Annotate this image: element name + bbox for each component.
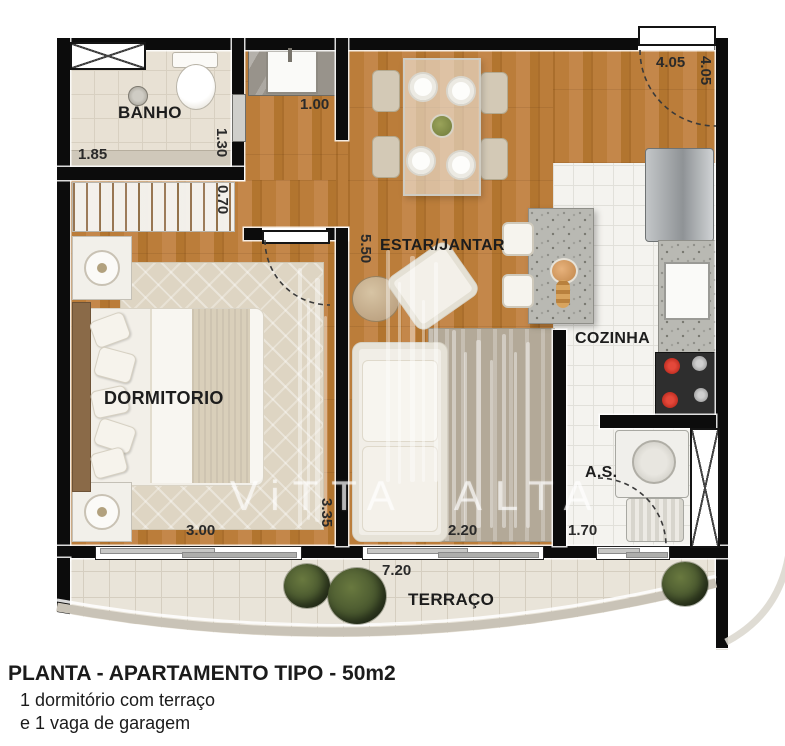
banho-height-dim: 1.30	[213, 128, 230, 157]
bar-stool	[502, 274, 534, 308]
dining-chair	[372, 70, 400, 112]
dinner-plate	[408, 72, 438, 102]
wall-banho-bottom	[57, 167, 244, 180]
plan-subtitle-2: e 1 vaga de garagem	[20, 713, 396, 734]
vitta-alta-watermark: ViTTA ALTA	[230, 472, 605, 520]
estar-height-dim: 5.50	[357, 234, 374, 263]
hall-sink	[266, 50, 318, 94]
dinner-plate	[446, 76, 476, 106]
terraco-width-dim: 7.20	[382, 562, 411, 579]
as-terrace-door	[596, 546, 670, 560]
entry-door-leaf	[638, 26, 716, 46]
plan-title: PLANTA - APARTAMENTO TIPO - 50m2	[8, 662, 396, 686]
estar-terrace-sliding-door	[362, 546, 544, 560]
cozinha-label: COZINHA	[575, 330, 650, 348]
stove-pot	[694, 388, 708, 402]
dining-chair	[372, 136, 400, 178]
bed-headboard	[72, 302, 91, 492]
service-shaft	[690, 428, 720, 548]
dinner-plate	[406, 146, 436, 176]
wall-left	[57, 38, 70, 560]
banho-label: BANHO	[118, 103, 182, 123]
laundry-tank	[626, 498, 684, 542]
closet-depth-dim: 0.70	[214, 185, 231, 214]
wall-hall-estar	[336, 38, 348, 140]
banho-door-leaf	[232, 94, 246, 142]
dinner-plate	[446, 150, 476, 180]
wall-terrace-left	[57, 558, 70, 618]
entry-floor	[553, 50, 716, 163]
bar-bread	[556, 280, 570, 308]
light-streak	[434, 262, 438, 482]
light-streak	[386, 250, 390, 482]
stove-burner-red	[664, 358, 680, 374]
light-streak	[422, 300, 425, 482]
terrace-bush	[662, 562, 708, 606]
dining-chair	[480, 138, 508, 180]
terraco-label: TERRAÇO	[408, 590, 494, 610]
plan-subtitle-1: 1 dormitório com terraço	[20, 690, 396, 711]
entry-height-dim: 4.05	[697, 56, 714, 85]
bar-stool	[502, 222, 534, 256]
hall-sink-faucet	[288, 48, 292, 62]
hall-width-dim: 1.00	[300, 96, 329, 113]
dorm-terrace-sliding-door	[95, 546, 302, 560]
refrigerator	[645, 148, 714, 242]
toilet-bowl	[176, 64, 216, 110]
stove-burner-red	[662, 392, 678, 408]
wardrobe	[72, 182, 235, 232]
nightstand-lamp	[84, 494, 120, 530]
dorm-door-leaf	[262, 230, 330, 244]
terrace-bush	[328, 568, 386, 624]
title-block: PLANTA - APARTAMENTO TIPO - 50m2 1 dormi…	[8, 662, 396, 734]
kitchen-sink	[664, 262, 710, 320]
banho-width-dim: 1.85	[78, 146, 107, 163]
nightstand-lamp	[84, 250, 120, 286]
floor-plan-page: BANHO 1.85 1.30 0.70 1.00 DORMITORIO 3.0…	[0, 0, 785, 746]
dining-chair	[480, 72, 508, 114]
decorative-swoosh	[726, 545, 785, 642]
light-streak	[398, 282, 401, 484]
washing-machine-drum	[632, 440, 676, 484]
dormitorio-label: DORMITORIO	[104, 388, 224, 409]
banho-window	[70, 42, 146, 70]
stove-pot	[692, 356, 707, 371]
wall-as-top	[600, 415, 716, 428]
dormitorio-width-dim: 3.00	[186, 522, 215, 539]
as-width-dim: 1.70	[568, 522, 597, 539]
light-streak	[410, 256, 415, 482]
hall-passage-floor	[336, 140, 348, 228]
estar-jantar-label: ESTAR/JANTAR	[380, 237, 505, 255]
wall-top	[57, 38, 728, 50]
estar-width-dim: 2.20	[448, 522, 477, 539]
entry-width-dim: 4.05	[656, 54, 685, 71]
terrace-bush	[284, 564, 330, 608]
table-centerpiece	[430, 114, 454, 138]
